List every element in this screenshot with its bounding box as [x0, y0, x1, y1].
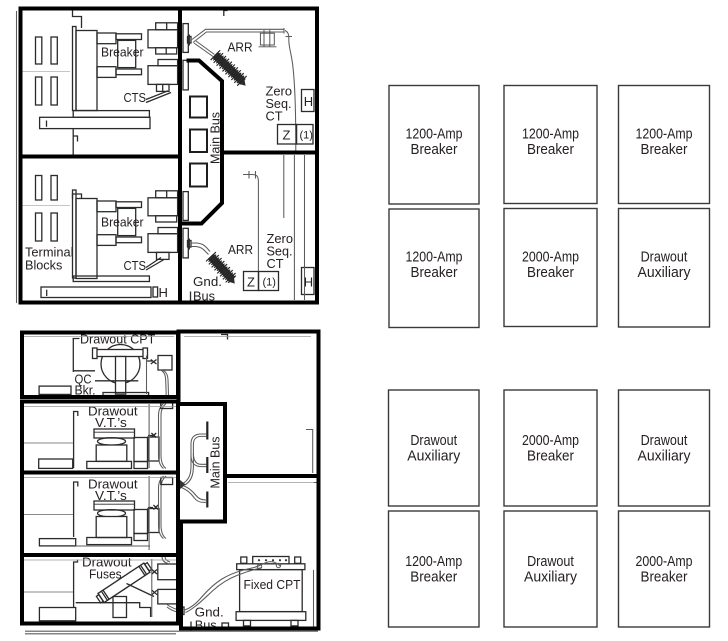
svg-text:ARR: ARR	[228, 40, 253, 55]
svg-text:Auxiliary: Auxiliary	[524, 570, 578, 586]
svg-text:Z: Z	[283, 128, 291, 143]
svg-text:Breaker: Breaker	[527, 449, 574, 465]
svg-text:ARR: ARR	[228, 242, 253, 257]
svg-text:CTS: CTS	[124, 258, 147, 273]
svg-text:Auxiliary: Auxiliary	[407, 449, 461, 465]
svg-text:Blocks: Blocks	[25, 258, 63, 273]
svg-text:H: H	[159, 285, 168, 300]
svg-text:Breaker: Breaker	[641, 570, 688, 586]
svg-text:1200-Amp: 1200-Amp	[405, 554, 462, 570]
svg-text:2000-Amp: 2000-Amp	[636, 554, 693, 570]
svg-text:1200-Amp: 1200-Amp	[636, 127, 693, 143]
svg-text:Breaker: Breaker	[527, 265, 574, 281]
svg-text:CT: CT	[266, 109, 283, 124]
svg-text:Breaker: Breaker	[641, 142, 688, 158]
svg-text:Z: Z	[247, 275, 255, 290]
svg-text:Drawout: Drawout	[527, 554, 574, 570]
svg-text:2000-Amp: 2000-Amp	[522, 250, 579, 266]
svg-text:Breaker: Breaker	[411, 142, 458, 158]
svg-text:1200-Amp: 1200-Amp	[406, 250, 463, 266]
svg-text:2000-Amp: 2000-Amp	[522, 433, 579, 449]
svg-text:1200-Amp: 1200-Amp	[522, 127, 579, 143]
svg-text:Auxiliary: Auxiliary	[638, 265, 692, 281]
svg-text:H: H	[304, 275, 313, 290]
svg-text:Drawout: Drawout	[641, 433, 688, 449]
svg-text:(1): (1)	[300, 130, 313, 142]
svg-text:Gnd.: Gnd.	[193, 274, 222, 289]
svg-text:1200-Amp: 1200-Amp	[406, 127, 463, 143]
svg-text:CT: CT	[267, 256, 284, 271]
svg-text:Breaker: Breaker	[410, 570, 457, 586]
svg-text:Breaker: Breaker	[411, 265, 458, 281]
svg-text:Breaker: Breaker	[527, 142, 574, 158]
svg-text:Breaker: Breaker	[101, 45, 144, 60]
svg-text:V.T.’s: V.T.’s	[95, 415, 127, 430]
svg-text:Drawout: Drawout	[641, 250, 688, 266]
svg-text:Main Bus: Main Bus	[208, 436, 223, 488]
svg-text:Auxiliary: Auxiliary	[638, 449, 692, 465]
svg-text:Drawout: Drawout	[410, 433, 457, 449]
svg-text:Fixed CPT: Fixed CPT	[244, 577, 301, 592]
svg-text:Breaker: Breaker	[101, 215, 144, 230]
svg-text:(1): (1)	[263, 277, 276, 289]
svg-text:H: H	[304, 94, 313, 109]
svg-text:CTS: CTS	[124, 90, 147, 105]
svg-text:Fuses: Fuses	[89, 567, 122, 582]
